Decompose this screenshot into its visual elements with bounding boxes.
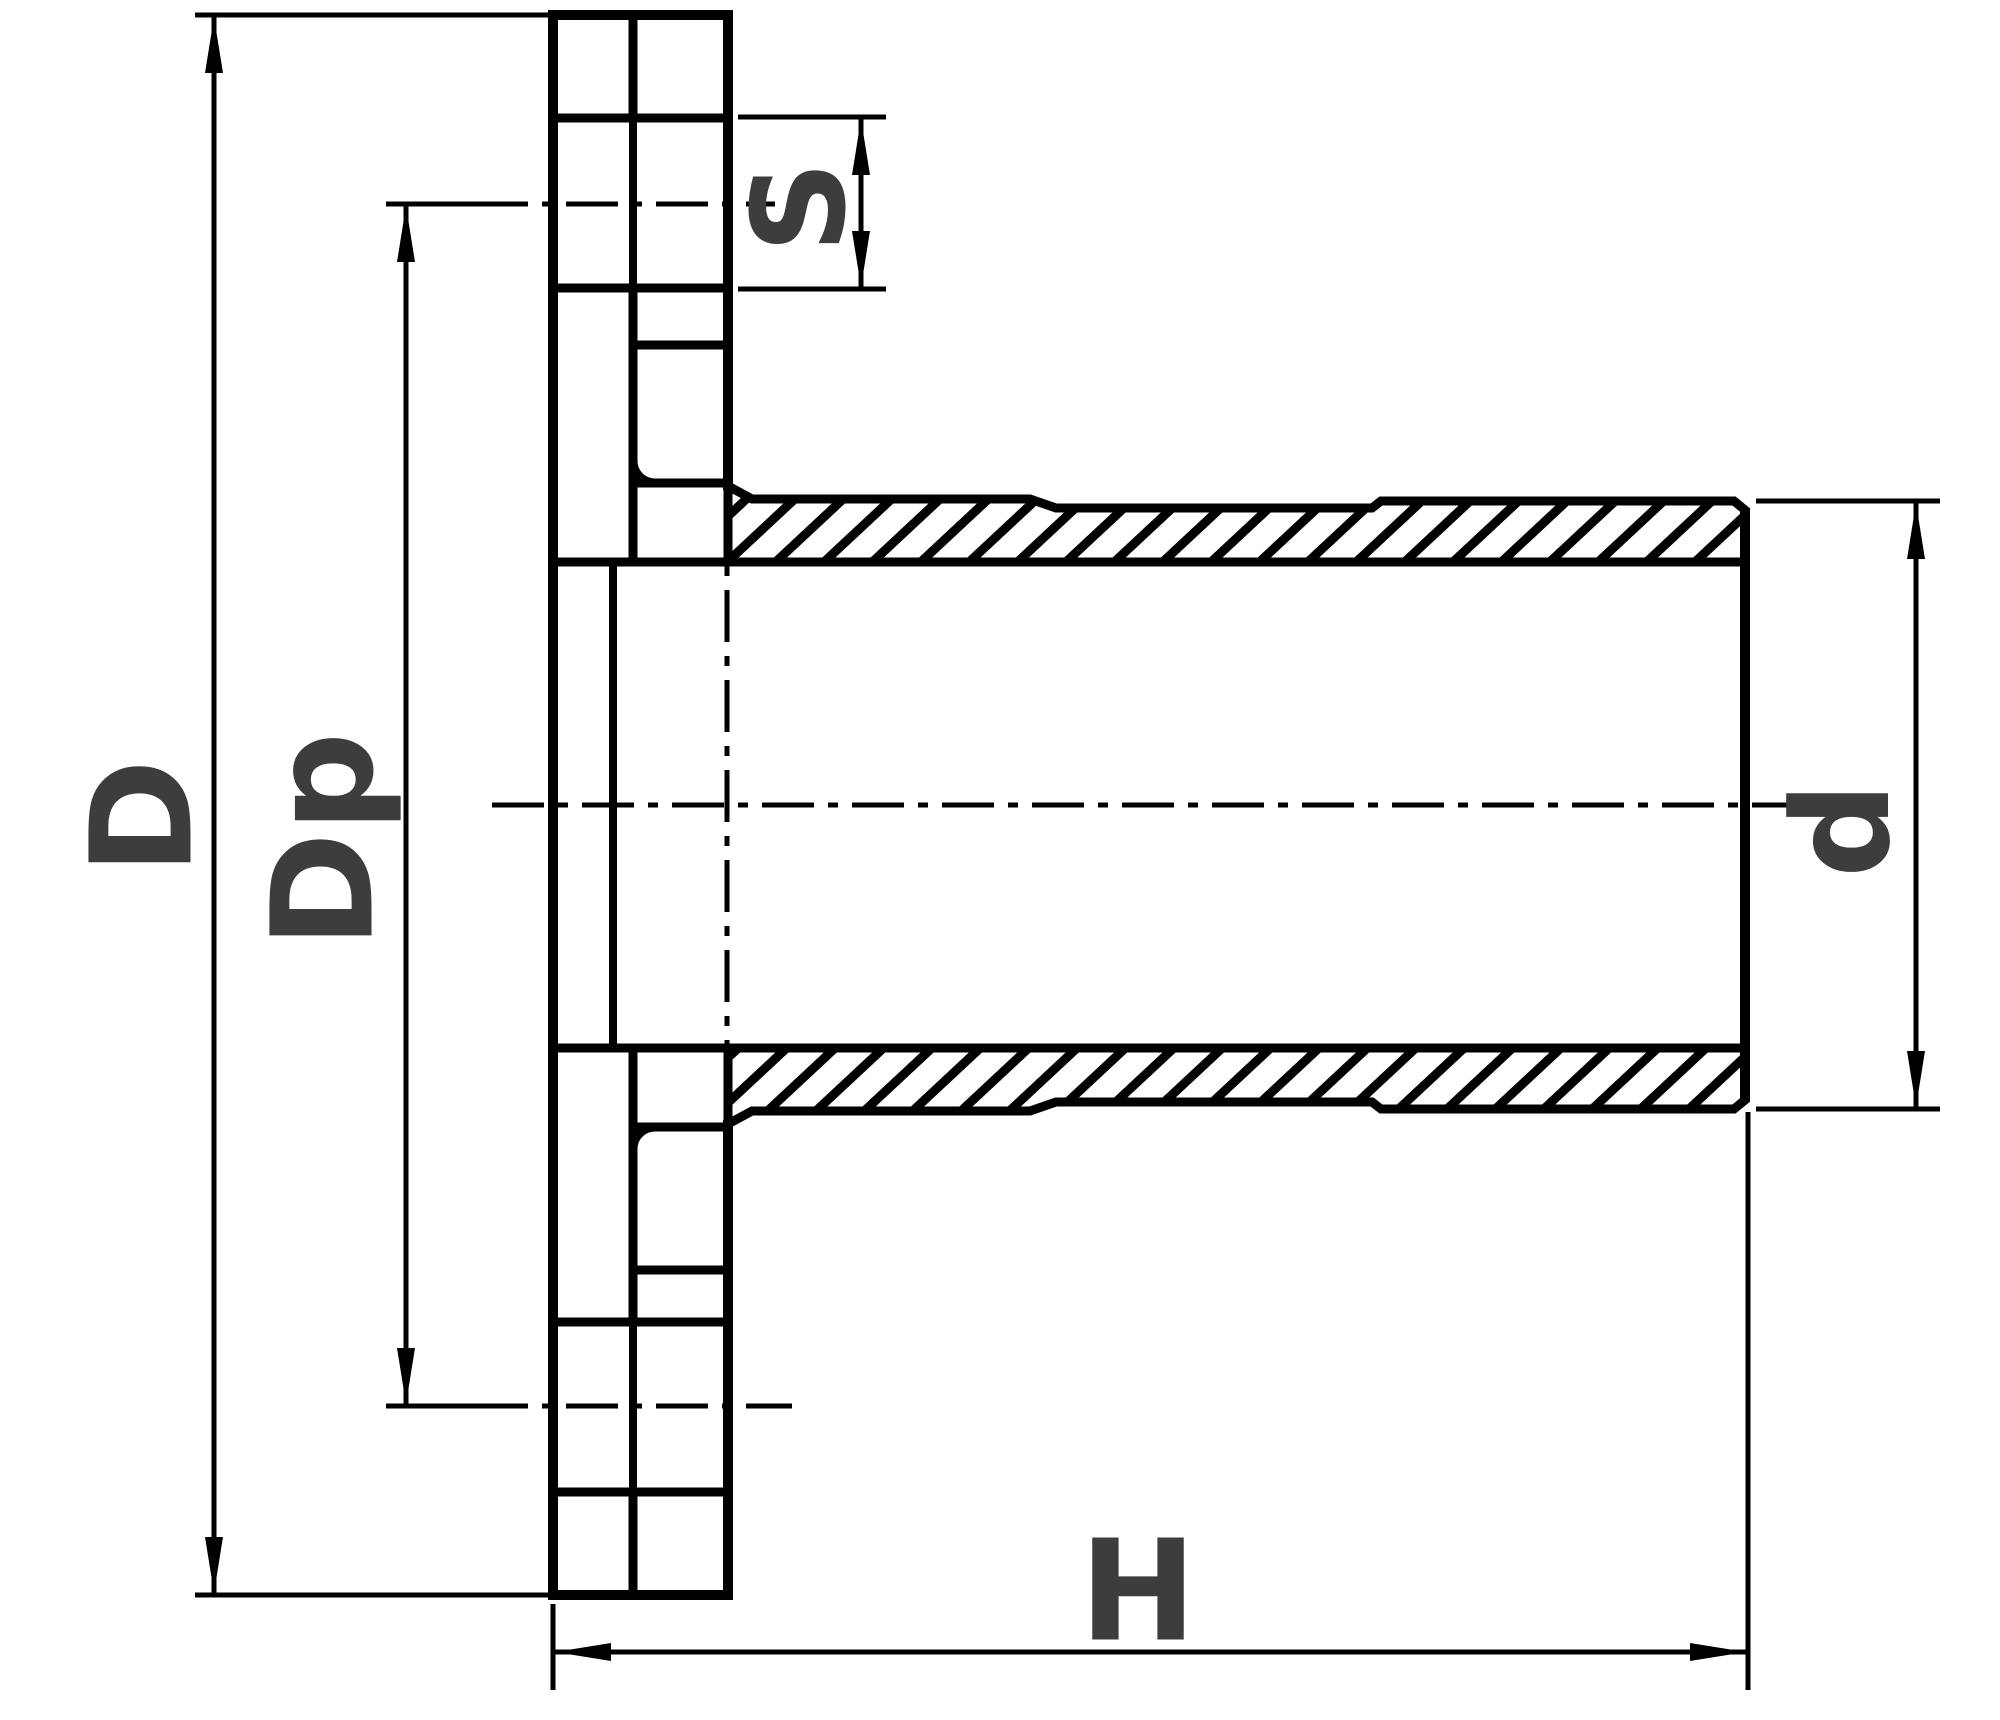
back-recess-top — [633, 345, 728, 483]
dimension-d-label: d — [1764, 782, 1920, 878]
dim-Dp-arrow-up — [397, 206, 415, 262]
dimension-Dp: Dp — [243, 204, 509, 1406]
flange-technical-drawing: D Dp S d H — [0, 0, 2000, 1720]
flange-section-drawing: D Dp S d H — [0, 0, 2000, 1720]
dim-H-arrow-left — [555, 1643, 611, 1661]
dimension-H-label: H — [1079, 1511, 1196, 1674]
dim-d-arrow-down — [1907, 1051, 1925, 1107]
pipe-wall-top — [728, 486, 1745, 562]
dimension-d: d — [1756, 501, 1940, 1109]
dim-H-arrow-right — [1690, 1643, 1746, 1661]
back-recess-bottom — [633, 1127, 728, 1270]
dim-D-arrow-down — [205, 1537, 223, 1593]
pipe-wall-bottom — [728, 1048, 1745, 1124]
dim-Dp-arrow-down — [397, 1348, 415, 1404]
dim-d-arrow-up — [1907, 503, 1925, 559]
dimension-S-label: S — [726, 161, 875, 253]
dim-D-arrow-up — [205, 17, 223, 73]
dimension-S: S — [726, 117, 887, 289]
dimension-D-label: D — [62, 759, 225, 875]
dimension-Dp-label: Dp — [243, 732, 406, 948]
